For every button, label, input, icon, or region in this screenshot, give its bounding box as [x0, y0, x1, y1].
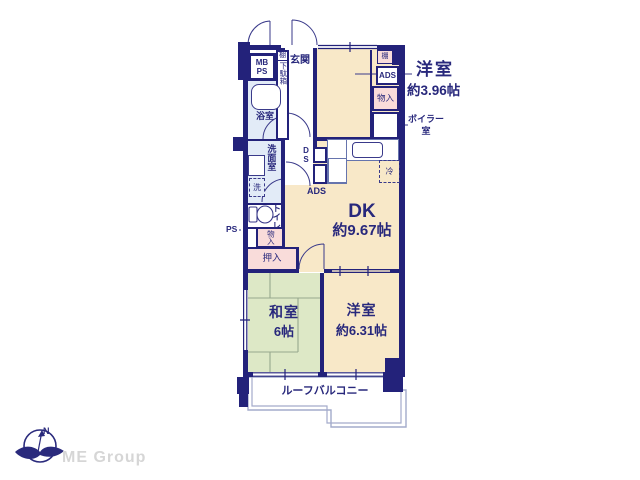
- bath-label: 浴室: [250, 111, 280, 121]
- yoshitsu-a-name: 洋室: [416, 60, 454, 80]
- washroom-label: 洗面室: [266, 144, 276, 171]
- corridor-door-arc-2: [286, 162, 310, 186]
- kitchen-sink: [352, 142, 383, 158]
- shoebox-shelf-label: 棚: [278, 52, 287, 61]
- washitsu-size: 6帖: [258, 325, 310, 340]
- shelf-top-right-label: 棚: [382, 53, 389, 61]
- sliding-door-dk: [332, 266, 390, 276]
- washitsu-door-arc: [299, 244, 324, 269]
- oshiire-closet: 押入: [248, 247, 296, 269]
- bathtub: [251, 84, 281, 110]
- fridge-space: 冷: [379, 160, 400, 183]
- ads-top-label: ADS: [379, 71, 396, 80]
- washer-space: 洗: [249, 178, 265, 197]
- boiler-niche: [372, 112, 399, 139]
- dk-size: 約9.67帖: [318, 222, 406, 239]
- meter-box: MB PS: [248, 53, 276, 81]
- boiler-label: ボイラー 室: [405, 114, 447, 137]
- compass-bird: [15, 447, 64, 459]
- ads-top-box: ADS: [376, 66, 399, 85]
- compass-n-label: N: [43, 426, 50, 436]
- storage-right-label: 物入: [377, 94, 394, 104]
- plan-linework: [0, 0, 640, 480]
- mbps-door-arc: [248, 21, 270, 45]
- wall-left-stub: [233, 137, 248, 151]
- ps-label: PS: [226, 225, 237, 235]
- ds-label: D S: [300, 146, 312, 164]
- corridor-door-arc-1: [286, 113, 310, 137]
- tatami-grid: [248, 273, 320, 372]
- kitchen-stove: [328, 158, 347, 183]
- dk-name: DK: [322, 201, 402, 223]
- ads-mid-label: ADS: [307, 186, 326, 196]
- window-top: [318, 42, 377, 52]
- duct-space-box-2: [313, 164, 327, 184]
- toilet-fixture: [249, 206, 273, 223]
- window-left-washitsu: [240, 290, 250, 350]
- yoshitsu-a-size: 約3.96帖: [407, 83, 460, 99]
- storage-mid-box: 物入: [256, 227, 284, 248]
- shoebox-label: 下駄箱: [278, 62, 287, 85]
- wall-bottom-b: [318, 372, 327, 377]
- vanity-unit: [248, 155, 265, 176]
- balcony-block-left-b: [239, 392, 248, 407]
- compass-icon: [15, 430, 64, 462]
- duct-space-box-1: [313, 147, 327, 163]
- shelf-top-right: 棚: [377, 50, 393, 64]
- wall-dk-bottom-b: [324, 269, 332, 273]
- wall-washitsu-yoshitsu-b: [320, 273, 324, 372]
- balcony-label: ルーフバルコニー: [250, 385, 400, 398]
- oshiire-label: 押入: [262, 254, 281, 265]
- wall-dk-bottom-a: [248, 269, 299, 273]
- entrance-door-arc: [292, 20, 317, 45]
- toilet-label: トイレ: [271, 204, 281, 230]
- floor-plan-page: MB PS 棚 下駄箱 棚 ADS 物入 冷 洗 物入 押入 玄関 浴室 洗面室…: [0, 0, 640, 480]
- wall-dk-bottom-c: [390, 269, 399, 273]
- genkan-label: 玄関: [287, 55, 313, 67]
- washitsu-name: 和室: [258, 304, 310, 320]
- storage-mid-label: 物入: [266, 230, 275, 245]
- yoshitsu-b-size: 約6.31帖: [324, 324, 399, 339]
- fridge-label: 冷: [386, 167, 394, 176]
- company-logo-text: ME Group: [62, 449, 146, 467]
- washer-label: 洗: [253, 183, 261, 192]
- storage-right-box: 物入: [372, 86, 399, 111]
- wall-corridor-room: [313, 48, 317, 147]
- meter-box-label: MB PS: [256, 58, 268, 76]
- yoshitsu-b-name: 洋室: [324, 302, 399, 318]
